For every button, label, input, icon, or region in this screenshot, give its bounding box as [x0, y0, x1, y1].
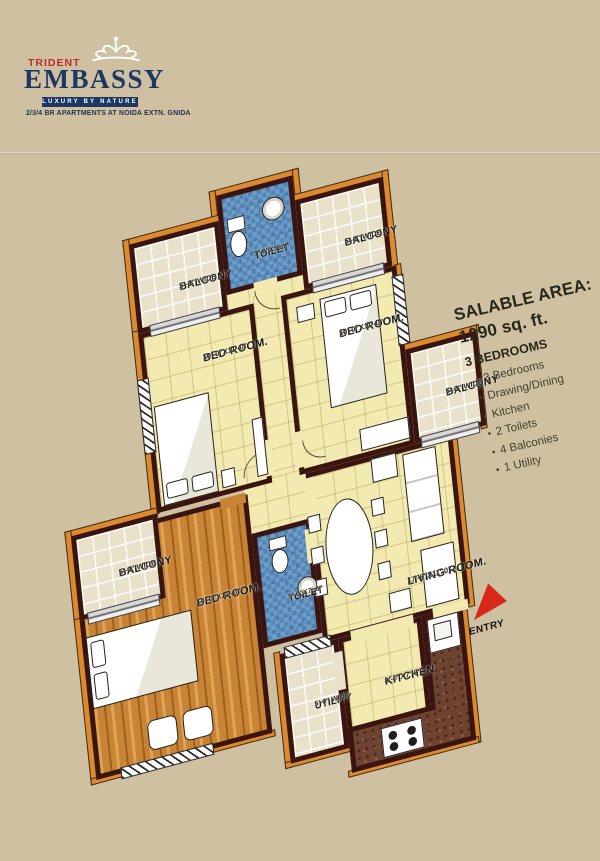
crown-flourish-icon: [80, 36, 152, 66]
dining-chair: [377, 560, 391, 580]
dining-chair: [307, 514, 321, 534]
dining-chair: [310, 545, 324, 565]
floor-plan: TOILET 7'-6"X5'-0" BALCONY 5'-0" WIDE BA…: [40, 128, 535, 855]
bullet-icon: •: [474, 375, 480, 387]
brand-name: EMBASSY: [24, 64, 165, 95]
pillow: [93, 671, 109, 701]
bullet-icon: •: [487, 429, 493, 441]
pillow: [90, 639, 106, 669]
entry-label: ENTRY: [469, 618, 505, 638]
side-table: [221, 467, 237, 489]
brand-tagline: LUXURY BY NATURE: [42, 97, 138, 107]
bullet-icon: •: [478, 393, 484, 405]
bullet-icon: •: [491, 447, 497, 459]
brand-subtitle: 2/3/4 BR APARTMENTS AT NOIDA EXTN. GNIDA: [26, 110, 191, 117]
brochure-page: { "brand": { "trident": "TRIDENT", "name…: [0, 0, 600, 861]
bullet-icon: •: [495, 465, 501, 477]
dining-chair: [371, 497, 385, 517]
divider-line: [0, 152, 600, 153]
dining-chair: [374, 528, 388, 548]
bullet-icon: •: [483, 411, 489, 423]
brand-logo: TRIDENT EMBASSY LUXURY BY NATURE 2/3/4 B…: [24, 36, 214, 128]
